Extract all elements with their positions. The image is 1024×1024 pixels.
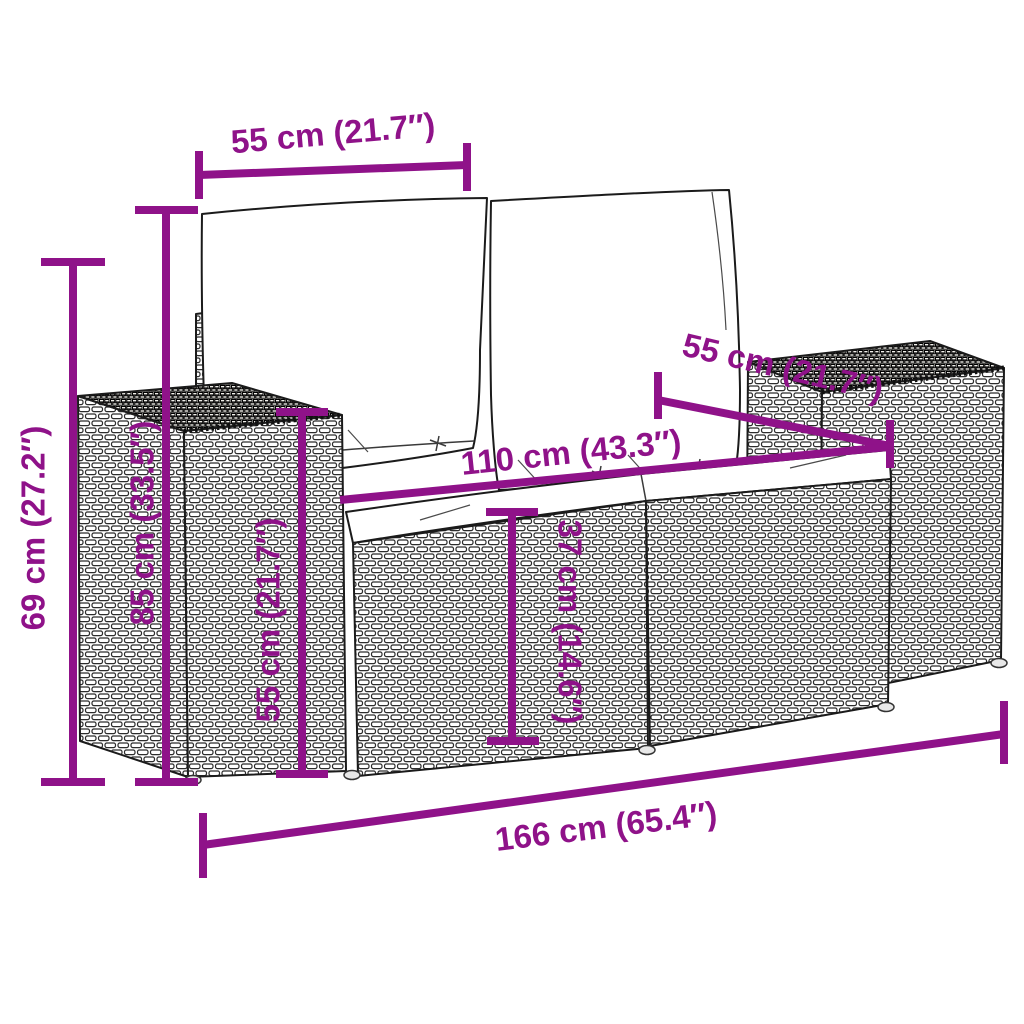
- dimension-label-total-height: 69 cm (27.2″): [17, 426, 50, 631]
- dimension-diagram-canvas: 55 cm (21.7″) 55 cm (21.7″) 110 cm (43.3…: [0, 0, 1024, 1024]
- seat-box-left: [353, 501, 648, 776]
- sofa-illustration: [78, 190, 1007, 785]
- dimension-label-seat-height: 37 cm (14.6″): [554, 520, 587, 725]
- dimension-label-armrest-height: 55 cm (21.7″): [252, 518, 285, 723]
- dimension-label-back-height: 85 cm (33.5″): [126, 421, 159, 626]
- seat-box-right: [646, 479, 891, 746]
